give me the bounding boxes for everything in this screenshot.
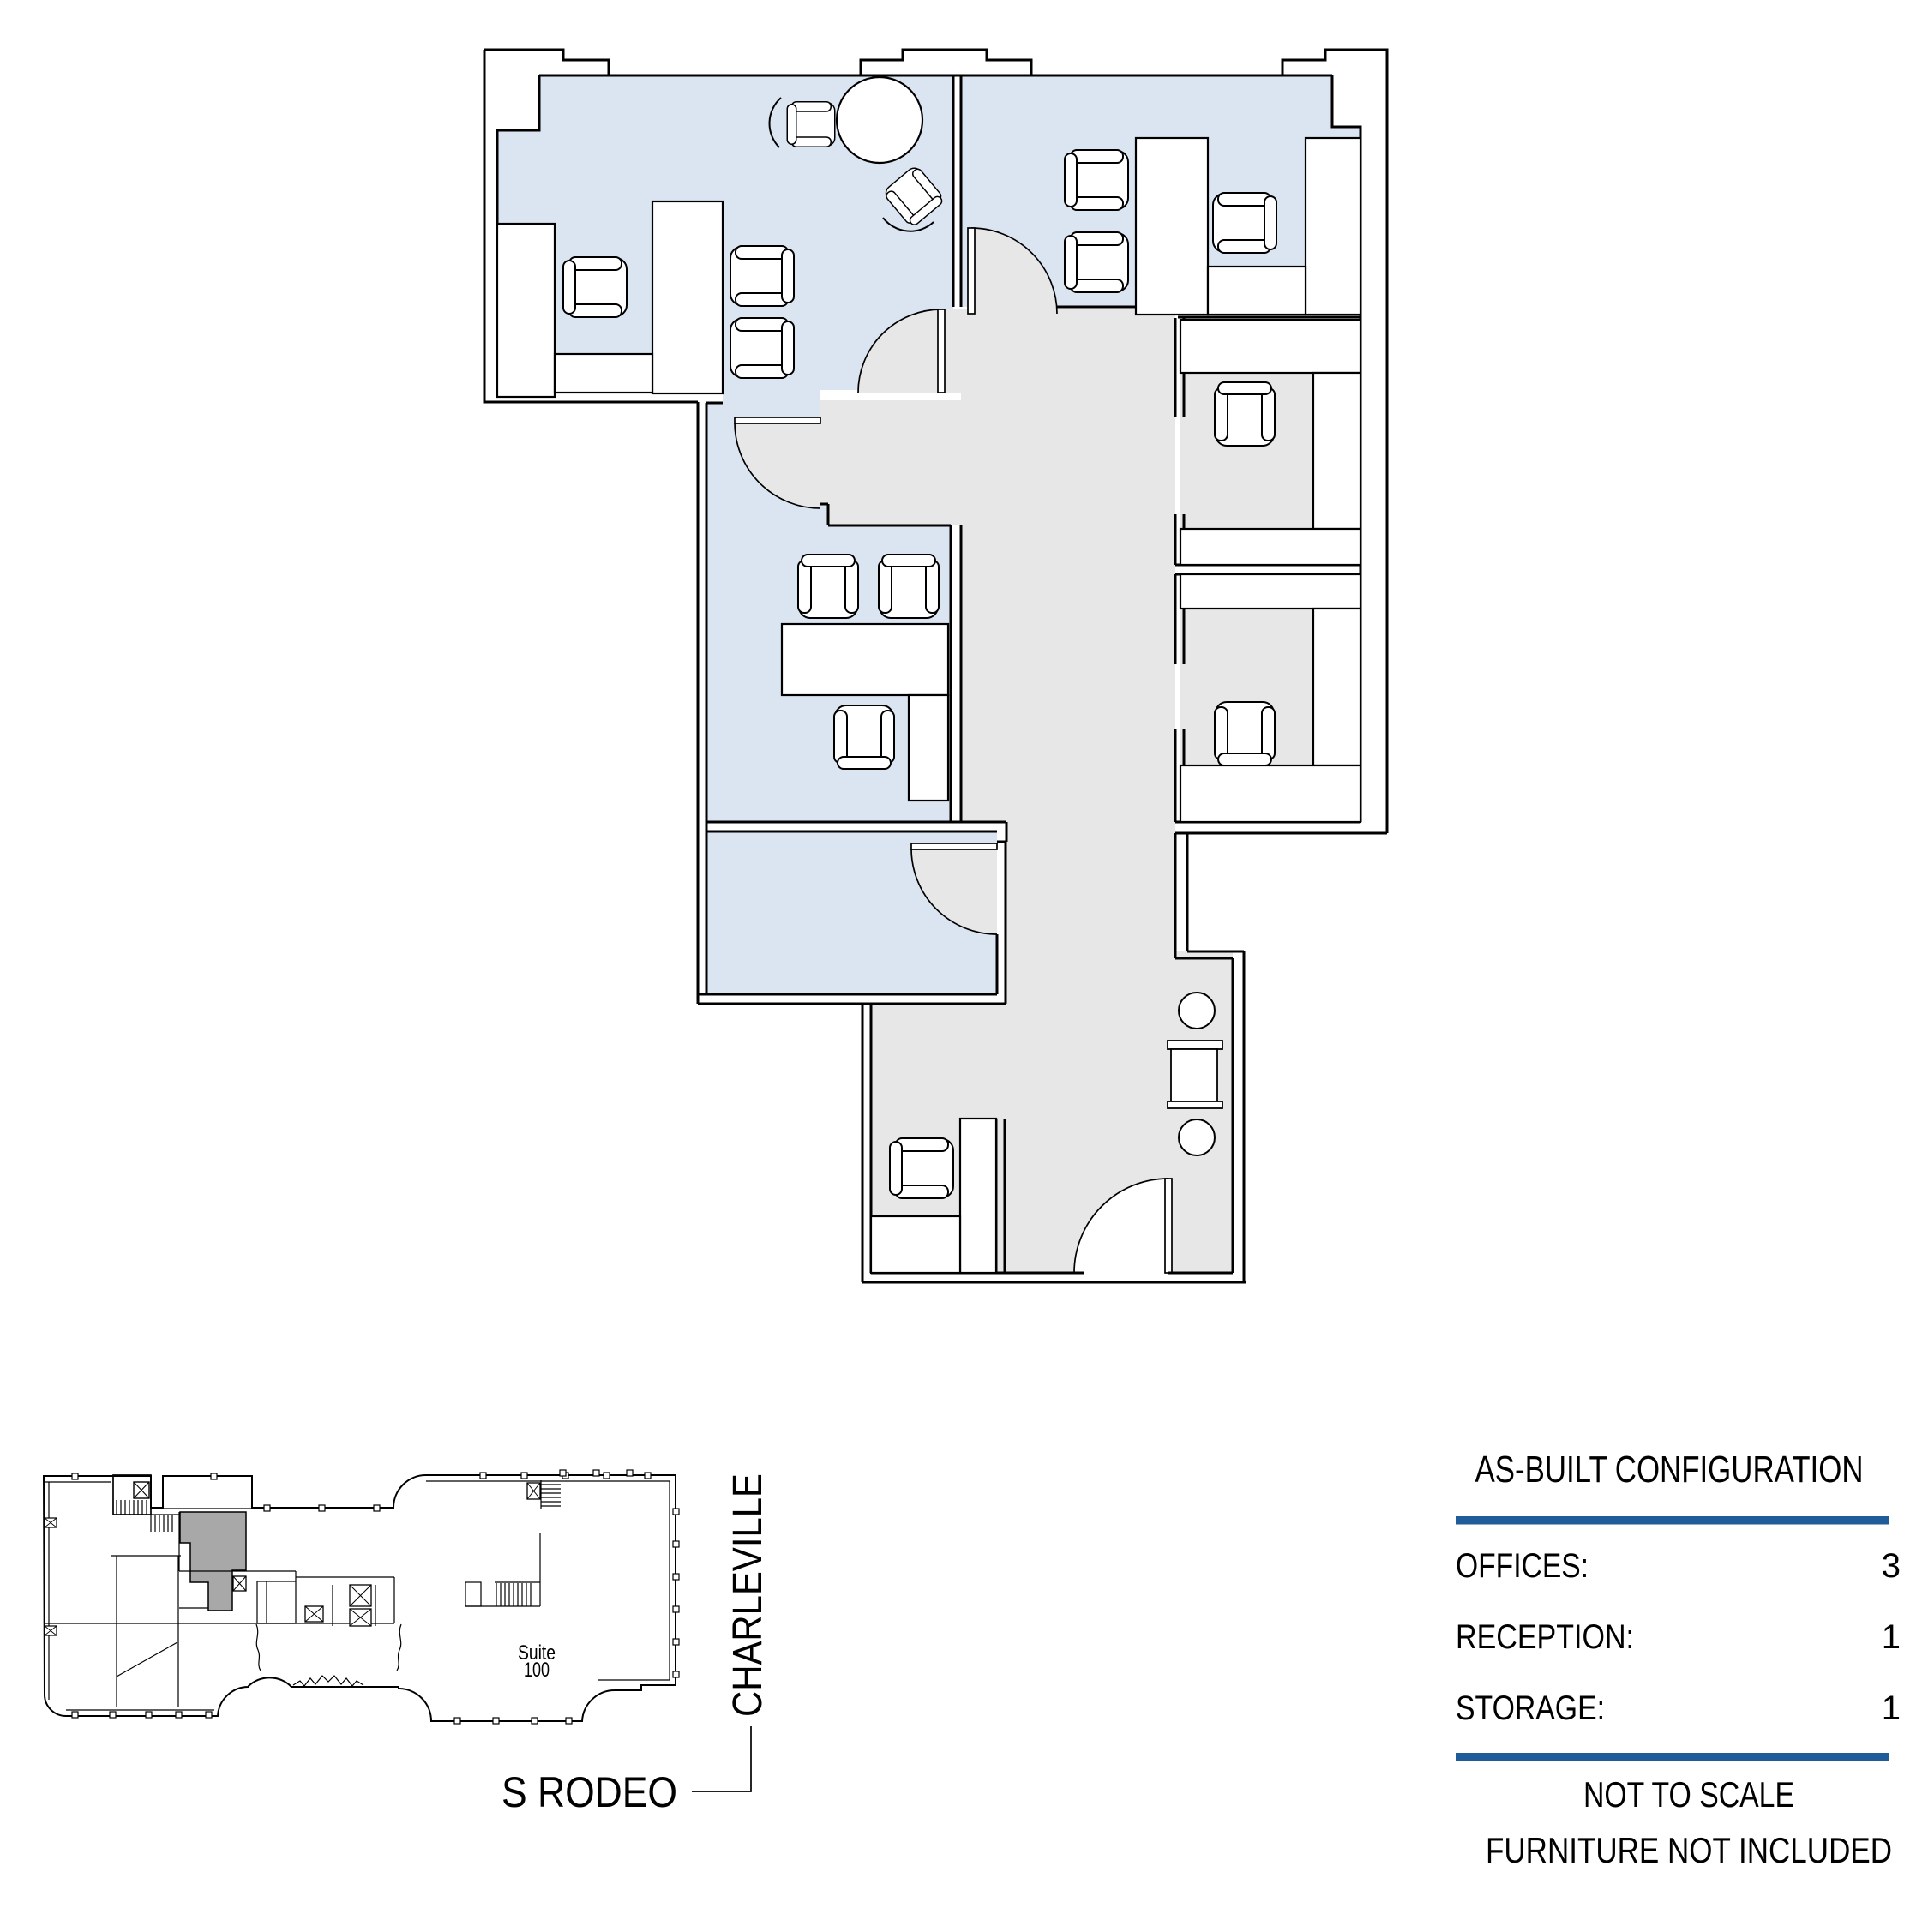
svg-text:NOT TO SCALE: NOT TO SCALE — [1583, 1774, 1794, 1815]
svg-text:1: 1 — [1882, 1689, 1901, 1727]
svg-text:AS-BUILT CONFIGURATION: AS-BUILT CONFIGURATION — [1475, 1449, 1864, 1491]
svg-text:3: 3 — [1882, 1547, 1901, 1585]
svg-text:FURNITURE NOT INCLUDED: FURNITURE NOT INCLUDED — [1486, 1830, 1892, 1870]
svg-text:1: 1 — [1882, 1618, 1901, 1656]
svg-text:100: 100 — [524, 1659, 550, 1682]
svg-text:S RODEO: S RODEO — [502, 1768, 677, 1816]
svg-text:CHARLEVILLE: CHARLEVILLE — [725, 1473, 771, 1717]
svg-text:STORAGE:: STORAGE: — [1456, 1689, 1605, 1727]
svg-text:RECEPTION:: RECEPTION: — [1456, 1618, 1634, 1656]
svg-text:OFFICES:: OFFICES: — [1456, 1547, 1589, 1585]
